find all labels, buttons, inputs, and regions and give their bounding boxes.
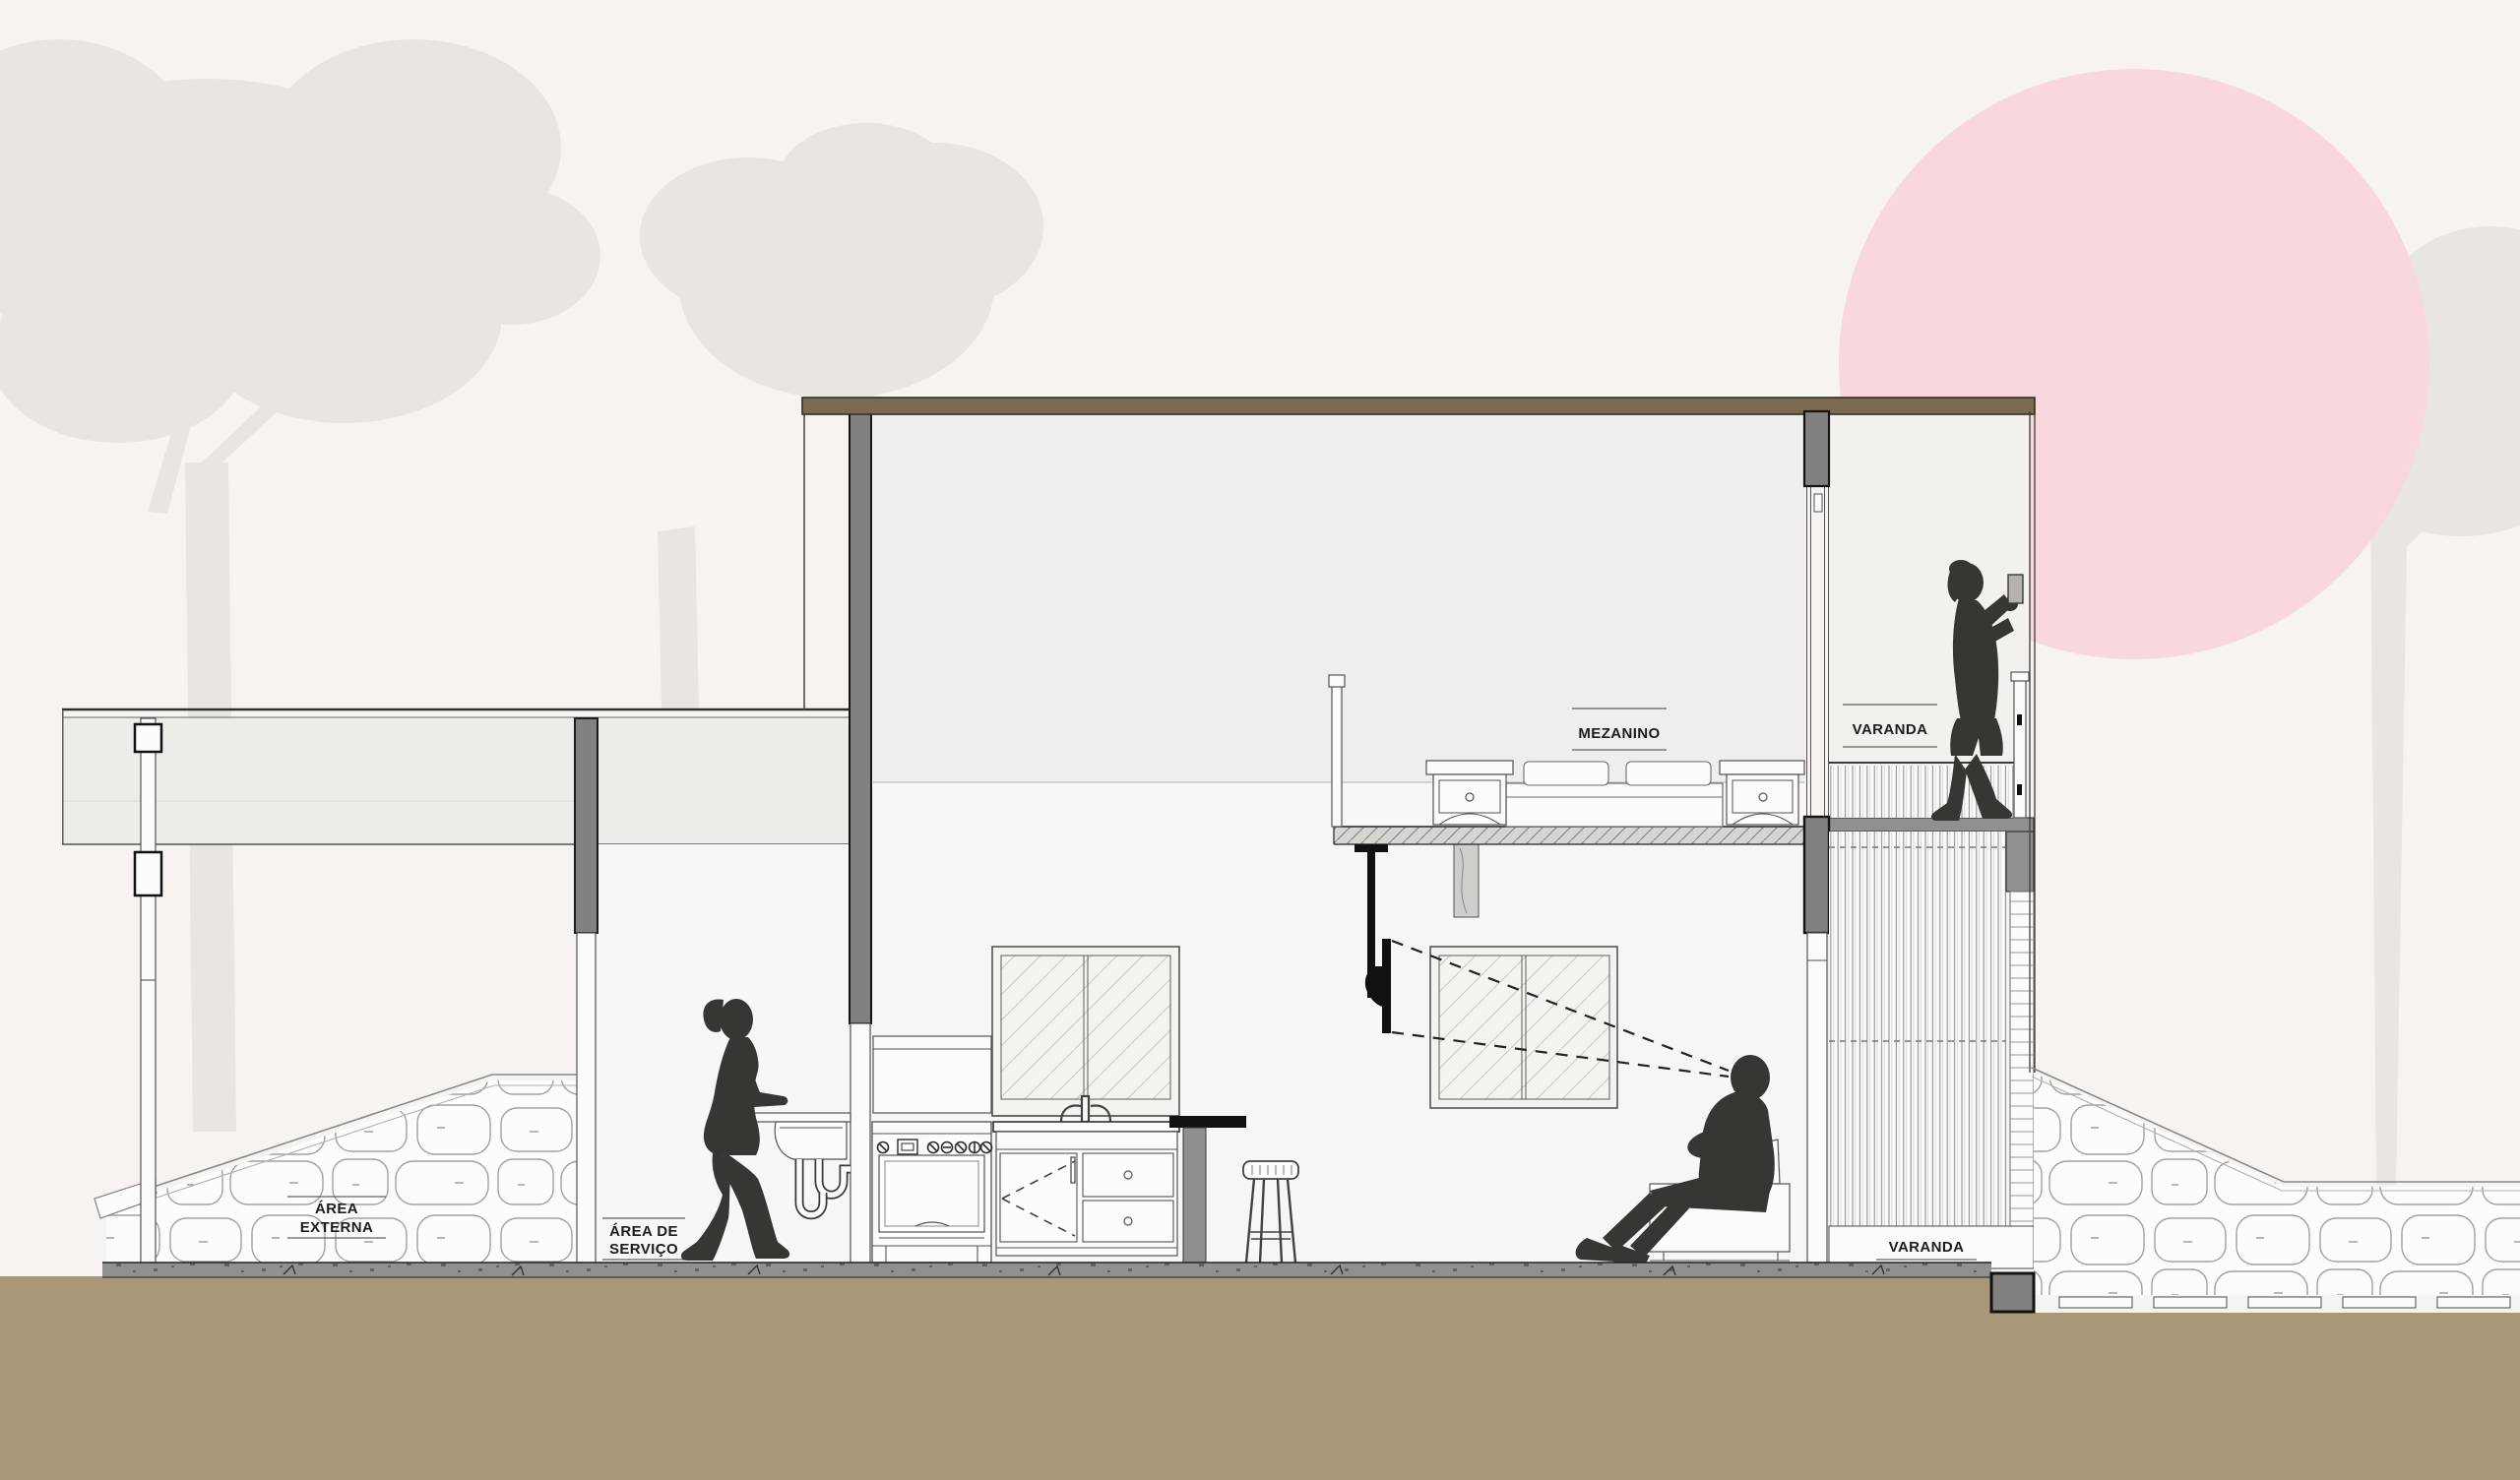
label-area-servico-line1: ÁREA DE: [609, 1223, 678, 1240]
pillow: [1524, 762, 1608, 785]
main-left-wall-lower: [850, 1023, 870, 1263]
range-hood: [873, 1036, 991, 1113]
phone: [2008, 575, 2023, 603]
label-area-servico-line2: SERVIÇO: [609, 1241, 678, 1258]
paving-stones: [2059, 1297, 2510, 1308]
guard-post: [1329, 675, 1345, 827]
floor-slab: [102, 1263, 1991, 1277]
label-mezanino-text: MEZANINO: [1578, 725, 1660, 742]
balcony-wall-lower: [1807, 933, 1827, 1263]
bar-column: [1183, 1128, 1206, 1263]
label-area-externa-line2: EXTERNA: [300, 1219, 373, 1236]
balcony-slab: [1804, 818, 2034, 832]
stove: [872, 1122, 992, 1263]
slat-screen: [1829, 832, 2006, 1226]
kitchen-window: [992, 947, 1179, 1116]
tv-screen: [1382, 939, 1391, 1033]
ground: [0, 1276, 2034, 1480]
pillow: [1626, 762, 1711, 785]
canopy-roof: [62, 709, 852, 844]
flat-roof: [802, 398, 2035, 414]
nightstand-left: [1426, 761, 1513, 825]
balcony-column-mid: [1804, 817, 1829, 933]
wood-joist: [1454, 844, 1479, 917]
living-window: [1430, 947, 1617, 1108]
mezzanine-slab: [1334, 827, 1805, 844]
service-wall-lower: [577, 933, 596, 1263]
label-varanda-lower-text: VARANDA: [1889, 1239, 1965, 1256]
section-drawing: ÁREA EXTERNA ÁREA DE SERVIÇO MEZANINO VA…: [0, 0, 2520, 1480]
label-area-externa-line1: ÁREA: [315, 1201, 358, 1217]
label-varanda-upper-text: VARANDA: [1853, 721, 1928, 738]
nightstand-right: [1720, 761, 1804, 825]
service-wall-column: [575, 718, 598, 933]
corner-post: [2011, 672, 2029, 818]
architectural-section-page: ÁREA EXTERNA ÁREA DE SERVIÇO MEZANINO VA…: [0, 0, 2520, 1480]
sink-cabinet: [993, 1122, 1179, 1256]
footing-block: [1991, 1273, 2034, 1312]
balcony-column-top: [1804, 411, 1829, 486]
ground-right: [2034, 1313, 2520, 1480]
label-area-servico: ÁREA DE SERVIÇO: [602, 1218, 685, 1260]
main-left-wall-column: [850, 411, 871, 1023]
